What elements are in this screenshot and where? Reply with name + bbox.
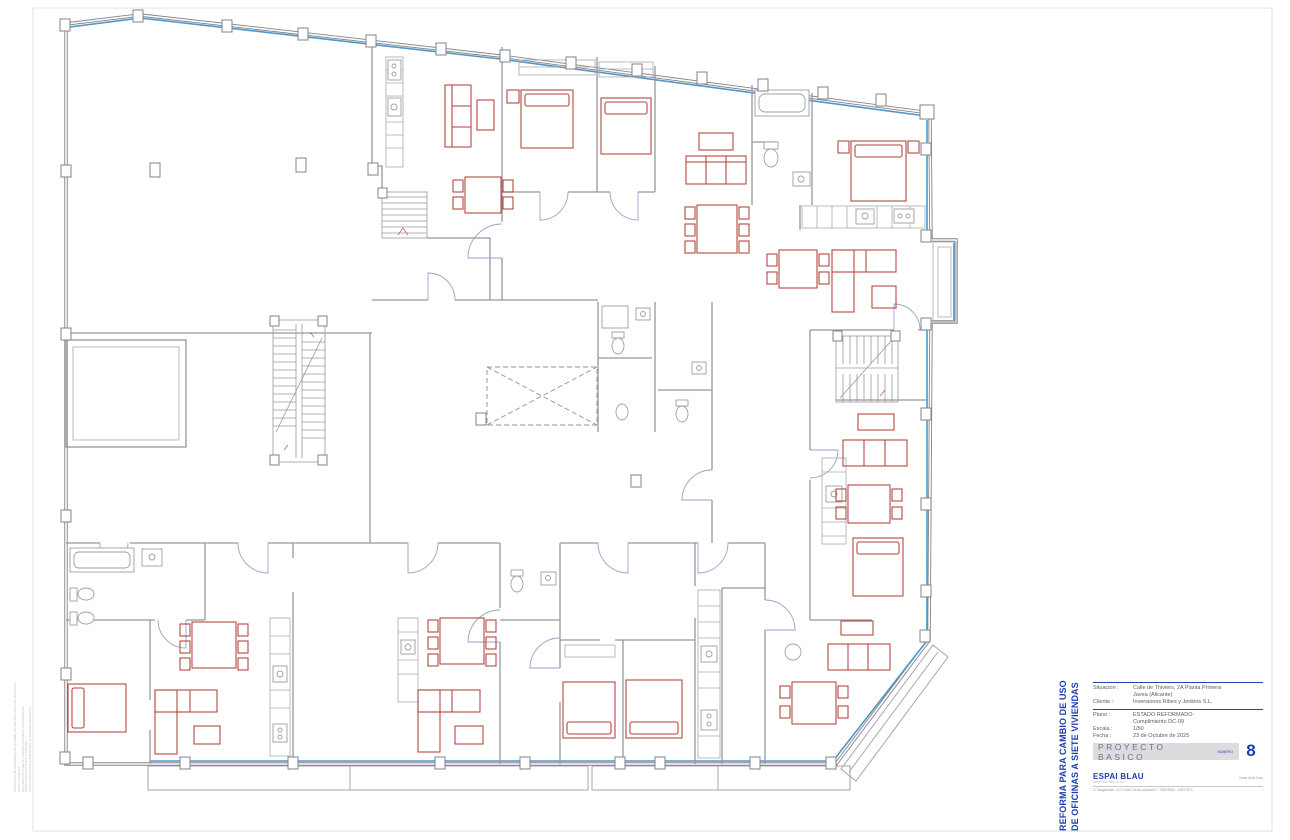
field-value: Inversiones Ribes y Jenkins S.L. — [1133, 699, 1263, 706]
field-value: Calle de Thiviers, 2A Planta Primera — [1133, 685, 1263, 692]
field-label: Fecha : — [1093, 733, 1133, 740]
void-cross-icon — [487, 367, 597, 425]
column-icon — [60, 10, 934, 769]
sink-icon — [701, 646, 717, 662]
dining-table-icon — [180, 622, 248, 670]
sofa-icon — [832, 250, 896, 312]
dining-table-icon — [780, 682, 848, 724]
bed-icon — [68, 684, 126, 732]
bathroom-fixtures — [70, 90, 810, 625]
light-well — [66, 340, 186, 447]
project-title-line2: DE OFICINAS A SIETE VIVIENDAS — [1070, 679, 1082, 831]
bathtub-icon — [755, 90, 809, 116]
field-fecha: Fecha : 23 de Octubre de 2025 — [1093, 733, 1263, 740]
field-label: Situacion : — [1093, 685, 1133, 692]
field-plano: Plano : ESTADO REFORMADO: — [1093, 712, 1263, 719]
toilet-icon — [616, 404, 628, 420]
field-escala: Escala : 1/50 — [1093, 726, 1263, 733]
toilet-icon — [612, 332, 624, 354]
field-value: 23 de Octubre de 2025 — [1133, 733, 1263, 740]
stairs-icon — [273, 192, 898, 462]
sofa-icon — [843, 414, 907, 466]
sink-icon — [541, 572, 556, 585]
field-label: Plano : — [1093, 712, 1133, 719]
dining-table-icon — [453, 177, 513, 213]
drawing-sheet: REFORMA PARA CAMBIO DE USO DE OFICINAS A… — [0, 0, 1290, 840]
field-situacion: Situacion : Calle de Thiviers, 2A Planta… — [1093, 685, 1263, 692]
sink-icon — [273, 666, 287, 682]
sink-icon — [692, 362, 706, 374]
sheet-number: 8 — [1239, 740, 1263, 761]
sink-icon — [388, 98, 401, 116]
dining-table-icon — [428, 618, 496, 666]
title-block-rule-mid — [1093, 709, 1263, 710]
sink-icon — [793, 172, 810, 186]
sofa-icon — [445, 85, 494, 147]
door-arc-icon — [100, 192, 920, 668]
firm-footer: Isaac Artal Soto ESPAI BLAU ARQUITECTES … — [1093, 772, 1263, 792]
field-situacion-line2: Javea (Alicante) — [1133, 692, 1263, 699]
stove-icon — [273, 724, 287, 742]
toilet-icon — [676, 400, 688, 422]
sink-icon — [826, 486, 842, 502]
sink-icon — [401, 640, 415, 654]
firm-subtitle: ARQUITECTES - S.L.P. — [1093, 781, 1263, 785]
round-table-icon — [785, 644, 801, 660]
margin-disclaimer: PROYECTO DE REFORMA PARA CAMBIO DE USO D… — [14, 682, 33, 792]
bed-icon — [601, 98, 651, 154]
bathtub-icon — [70, 548, 134, 572]
sheet-frame — [33, 8, 1272, 831]
toilet-icon — [511, 570, 523, 592]
footer-divider — [1093, 786, 1263, 787]
sofa-icon — [155, 690, 220, 754]
bed-icon — [507, 90, 573, 148]
stage-label: PROYECTO BASICO — [1093, 742, 1217, 762]
field-value: ESTADO REFORMADO: — [1133, 712, 1263, 719]
sofa-icon — [828, 621, 890, 670]
sofa-icon — [686, 133, 746, 184]
sink-icon — [636, 308, 650, 320]
toilet-icon — [70, 612, 94, 625]
bed-icon — [838, 141, 919, 201]
bed-icon — [563, 682, 615, 738]
architect-name: Isaac Artal Soto — [1239, 776, 1263, 780]
title-block-rule-top — [1093, 682, 1263, 683]
sink-icon — [856, 209, 874, 224]
stage-bar: PROYECTO BASICO NUMERO 8 — [1093, 743, 1263, 760]
bay-window-icon — [933, 242, 956, 322]
stove-icon — [894, 209, 914, 223]
sofa-icon — [418, 690, 483, 752]
window-glazing — [70, 18, 954, 761]
field-value: 1/50 — [1133, 726, 1263, 733]
outer-walls — [66, 15, 956, 764]
project-title-line1: REFORMA PARA CAMBIO DE USO — [1058, 679, 1070, 831]
stove-icon — [701, 710, 717, 730]
stove-icon — [388, 60, 401, 80]
dining-table-icon — [767, 250, 829, 288]
toilet-icon — [764, 142, 778, 167]
sink-icon — [142, 549, 162, 566]
dining-table-icon — [685, 205, 749, 253]
bed-icon — [626, 680, 682, 738]
title-block: Situacion : Calle de Thiviers, 2A Planta… — [1093, 682, 1263, 792]
bed-icon — [853, 538, 903, 596]
firm-address: C/ Magallanes, 21 2ª Izda. Denia (Alican… — [1093, 788, 1263, 792]
project-title: REFORMA PARA CAMBIO DE USO DE OFICINAS A… — [1058, 679, 1081, 831]
furniture — [68, 85, 919, 754]
field-label: Escala : — [1093, 726, 1133, 733]
field-cliente: Cliente : Inversiones Ribes y Jenkins S.… — [1093, 699, 1263, 706]
sheet-number-label: NUMERO — [1217, 750, 1239, 754]
toilet-icon — [70, 588, 94, 601]
field-label: Cliente : — [1093, 699, 1133, 706]
field-plano-line2: Cumplimiento DC-09 — [1133, 719, 1263, 726]
